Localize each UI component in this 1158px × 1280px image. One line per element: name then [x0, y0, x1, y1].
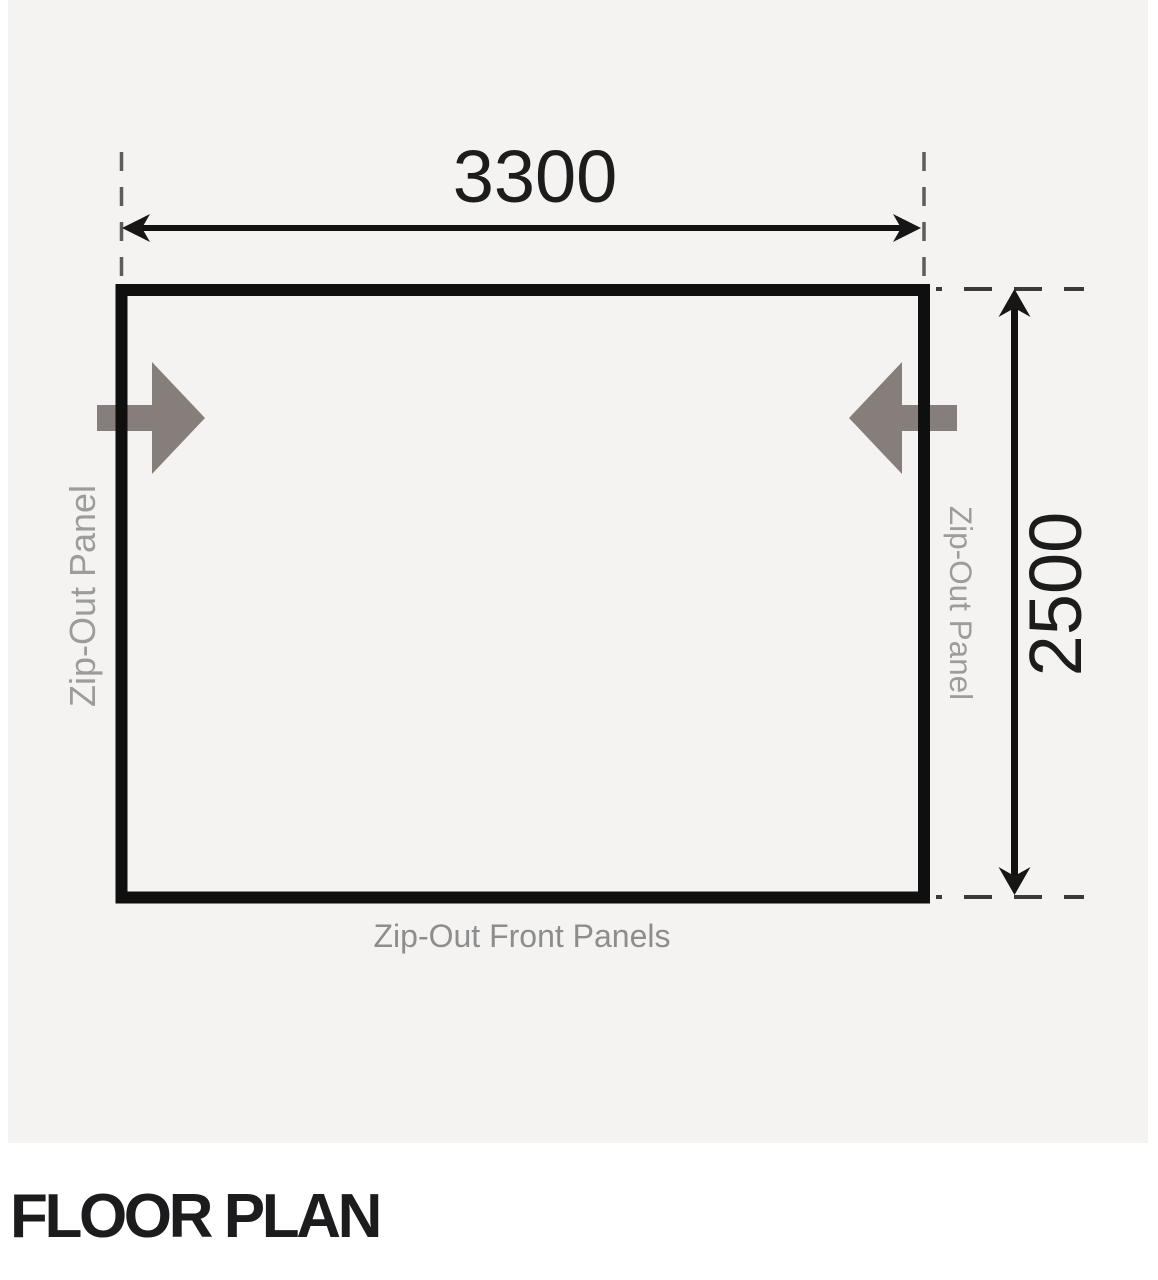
- svg-text:2500: 2500: [1014, 512, 1097, 677]
- svg-text:Zip-Out Panel: Zip-Out Panel: [62, 485, 103, 707]
- svg-text:3300: 3300: [453, 135, 618, 218]
- svg-text:Zip-Out Front Panels: Zip-Out Front Panels: [374, 918, 671, 954]
- svg-text:FLOOR PLAN: FLOOR PLAN: [10, 1182, 379, 1251]
- svg-text:Zip-Out Panel: Zip-Out Panel: [943, 506, 979, 700]
